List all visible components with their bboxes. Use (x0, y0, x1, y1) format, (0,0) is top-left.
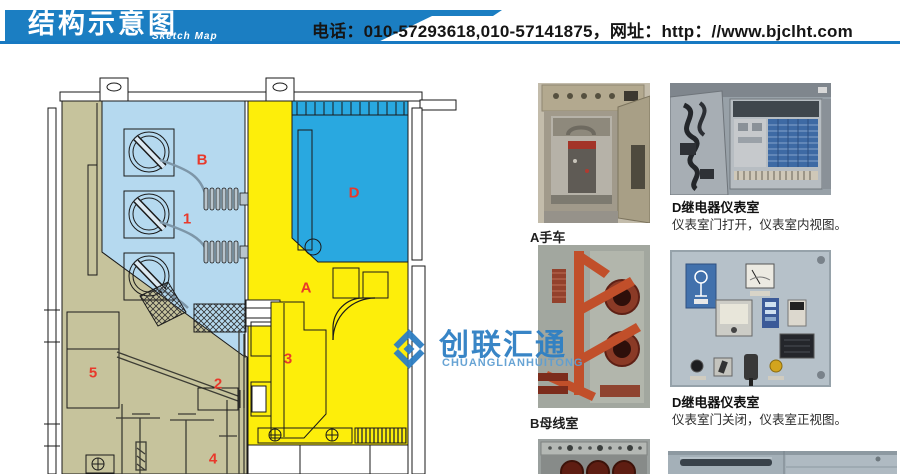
caption-handcart: A手车 (530, 227, 565, 246)
caption-relay-open-desc: 仪表室门打开，仪表室内视图。 (672, 214, 847, 233)
diagram-label-busbar-room: B (197, 153, 208, 168)
contact-info: 电话：010-57293618,010-57141875，网址：http：//w… (312, 17, 853, 42)
catalog-page: 结构示意图 Sketch Map 电话：010-57293618,010-571… (0, 0, 900, 474)
diagram-label-5: 5 (89, 366, 97, 381)
diagram-label-1: 1 (183, 212, 191, 227)
photo-bottom-right-partial (668, 451, 897, 474)
diagram-label-2: 2 (214, 377, 222, 392)
caption-busbar-room: B母线室 (530, 413, 578, 432)
photo-bottom-left-partial (538, 439, 650, 474)
diagram-label-4: 4 (209, 452, 217, 467)
photo-relay-room-open (670, 83, 831, 195)
page-subtitle: Sketch Map (152, 31, 218, 42)
diagram-label-breaker-room: A (301, 281, 312, 296)
diagram-label-3: 3 (284, 352, 292, 367)
company-logo-icon (383, 320, 435, 378)
company-watermark: 创联汇通 CHUANGLIANHUITONG (383, 320, 588, 384)
photo-relay-room-closed (670, 250, 831, 387)
watermark-name-en: CHUANGLIANHUITONG (442, 357, 583, 369)
switchgear-cross-section-diagram (30, 70, 470, 474)
caption-relay-closed-desc: 仪表室门关闭，仪表室正视图。 (672, 409, 847, 428)
photo-handcart (538, 83, 650, 223)
diagram-label-relay-room: D (349, 186, 360, 201)
